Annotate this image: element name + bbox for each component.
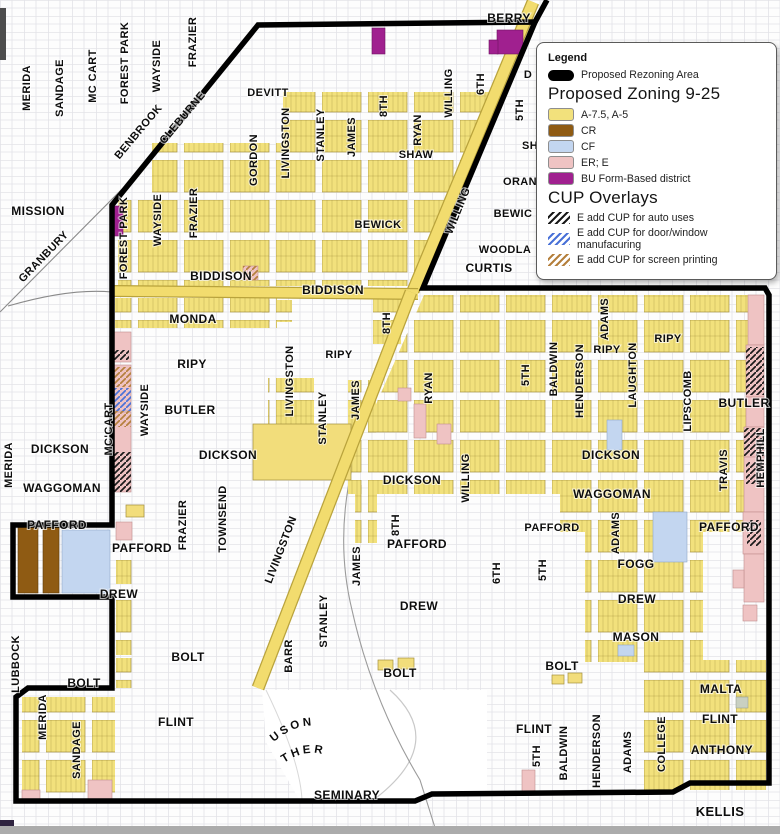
edge-artifact-top-left xyxy=(0,8,6,60)
street-label: MASON xyxy=(613,630,660,644)
street-label: 5TH xyxy=(531,745,543,767)
street-label: BOLT xyxy=(545,659,579,673)
street-label: COLLEGE xyxy=(656,716,668,772)
street-label: 5TH xyxy=(537,559,549,581)
street-label: RYAN xyxy=(423,372,435,403)
legend-item-label: E add CUP for auto uses xyxy=(577,212,694,224)
street-label: STANLEY xyxy=(315,108,327,162)
street-label: BUTLER xyxy=(718,396,769,410)
street-label: 8TH xyxy=(378,95,390,117)
legend-item-label: BU Form-Based district xyxy=(581,173,691,185)
street-label: DREW xyxy=(618,592,657,606)
street-label: 5TH xyxy=(514,99,526,121)
street-label: MISSION xyxy=(11,204,64,218)
street-label: RIPY xyxy=(325,349,353,361)
street-label: MERIDA xyxy=(37,694,49,740)
street-label: JAMES xyxy=(350,380,362,420)
street-label: WAYSIDE xyxy=(151,40,163,93)
street-label: DICKSON xyxy=(582,448,640,462)
street-label: JAMES xyxy=(346,117,358,157)
zone-swatch xyxy=(548,124,574,137)
street-label: JAMES xyxy=(351,546,363,586)
street-label: MC CART xyxy=(87,49,99,103)
street-label: MONDA xyxy=(169,312,216,326)
street-label: KELLIS xyxy=(696,804,745,819)
hatch-swatch xyxy=(548,233,570,245)
legend-item-label: E add CUP for door/window manufacuring xyxy=(577,227,766,251)
street-label: PAFFORD xyxy=(27,518,87,532)
legend-item-label: CF xyxy=(581,141,595,153)
legend-item: E add CUP for door/window manufacuring xyxy=(548,227,766,251)
street-label: HENDERSON xyxy=(574,344,586,418)
hatch-swatch xyxy=(548,254,570,266)
zone-swatch xyxy=(548,156,574,169)
street-label: BUTLER xyxy=(164,403,215,417)
street-label: FRAZIER xyxy=(188,188,200,238)
street-label: WAYSIDE xyxy=(139,384,151,437)
street-label: BOLT xyxy=(383,666,417,680)
street-label: PAFFORD xyxy=(112,541,172,555)
street-label: BIDDISON xyxy=(190,269,252,283)
street-label: WILLING xyxy=(460,453,472,502)
legend: Legend Proposed Rezoning Area Proposed Z… xyxy=(536,42,777,280)
street-label: FRAZIER xyxy=(187,17,199,67)
street-label: DICKSON xyxy=(199,448,257,462)
legend-title: Legend xyxy=(548,52,766,64)
street-label: SANDAGE xyxy=(54,59,66,117)
zone-swatch xyxy=(548,172,574,185)
legend-zoning-heading: Proposed Zoning 9-25 xyxy=(548,84,766,104)
street-label: 6TH xyxy=(475,73,487,95)
street-label: HENDERSON xyxy=(591,714,603,788)
street-label: TRAVIS xyxy=(718,449,730,491)
street-label: FOGG xyxy=(618,557,655,571)
street-label: D xyxy=(524,69,532,81)
street-label: MALTA xyxy=(700,682,742,696)
street-label: WAYSIDE xyxy=(152,194,164,247)
street-label: BIDDISON xyxy=(302,283,364,297)
street-label: STANLEY xyxy=(318,594,330,648)
street-label: MC'CART xyxy=(103,402,115,455)
legend-item: E add CUP for auto uses xyxy=(548,212,766,224)
street-label: BALDWIN xyxy=(548,342,560,397)
street-label: LIVINGSTON xyxy=(280,107,292,178)
legend-item: A-7.5, A-5 xyxy=(548,108,766,121)
street-label: BERRY xyxy=(487,11,531,25)
street-label: DICKSON xyxy=(31,442,89,456)
street-label: WOODLA xyxy=(479,244,532,256)
street-label: PAFFORD xyxy=(699,520,759,534)
street-label: ADAMS xyxy=(610,512,622,554)
street-label: CURTIS xyxy=(465,261,512,275)
street-label: LIPSCOMB xyxy=(682,370,694,431)
legend-item-rezoning: Proposed Rezoning Area xyxy=(548,69,766,81)
street-label: ADAMS xyxy=(622,731,634,773)
street-label: FOREST PARK xyxy=(119,22,131,104)
street-label: BEWIC xyxy=(494,208,533,220)
street-label: FLINT xyxy=(158,715,194,729)
street-label: 8TH xyxy=(390,514,402,536)
street-label: SHAW xyxy=(399,149,434,161)
street-label: LUBBOCK xyxy=(10,635,22,693)
rezoning-swatch xyxy=(548,70,574,81)
street-label: MERIDA xyxy=(3,442,15,488)
street-label: SEMINARY xyxy=(314,788,380,802)
street-label: FLINT xyxy=(516,722,552,736)
street-label: BOLT xyxy=(171,650,205,664)
street-label: WILLING xyxy=(443,68,455,117)
street-label: SANDAGE xyxy=(71,721,83,779)
street-label: HEMPHILL xyxy=(755,428,767,487)
legend-item-label: CR xyxy=(581,125,596,137)
bottom-gray-bar xyxy=(0,826,780,834)
zoning-map-page: MERIDASANDAGEMC CARTFOREST PARKWAYSIDEFR… xyxy=(0,0,780,834)
street-label: FRAZIER xyxy=(177,500,189,550)
legend-item: ER; E xyxy=(548,156,766,169)
legend-item-label: ER; E xyxy=(581,157,609,169)
legend-item: E add CUP for screen printing xyxy=(548,254,766,266)
street-label: RIPY xyxy=(593,344,621,356)
street-label: 8TH xyxy=(381,312,393,334)
street-label: LIVINGSTON xyxy=(284,345,296,416)
street-label: PAFFORD xyxy=(387,537,447,551)
street-label: DREW xyxy=(400,599,439,613)
street-label: PAFFORD xyxy=(524,522,579,534)
street-label: DREW xyxy=(100,587,139,601)
street-label: WAGGOMAN xyxy=(573,487,651,501)
street-label: ANTHONY xyxy=(691,743,753,757)
street-label: 5TH xyxy=(520,364,532,386)
street-label: FOREST PARK xyxy=(118,197,130,279)
street-label: BEWICK xyxy=(354,219,401,231)
zone-swatch xyxy=(548,140,574,153)
street-label: ADAMS xyxy=(599,298,611,340)
open-land-area xyxy=(262,690,487,801)
legend-overlays-heading: CUP Overlays xyxy=(548,188,766,208)
street-label: BARR xyxy=(283,639,295,672)
street-label: MERIDA xyxy=(21,65,33,111)
legend-item: CR xyxy=(548,124,766,137)
street-label: BOLT xyxy=(67,676,101,690)
street-label: RIPY xyxy=(177,357,207,371)
street-label: GORDON xyxy=(248,134,260,186)
legend-item-label: A-7.5, A-5 xyxy=(581,109,628,121)
zone-swatch xyxy=(548,108,574,121)
hatch-swatch xyxy=(548,212,570,224)
street-label: 6TH xyxy=(491,562,503,584)
street-label: RYAN xyxy=(412,114,424,145)
legend-item-label: Proposed Rezoning Area xyxy=(581,69,699,81)
street-label: WAGGOMAN xyxy=(23,481,101,495)
street-label: FLINT xyxy=(702,712,738,726)
gray-parcel xyxy=(736,697,748,708)
legend-item-label: E add CUP for screen printing xyxy=(577,254,718,266)
street-label: RIPY xyxy=(654,333,682,345)
street-label: DEVITT xyxy=(247,87,289,99)
street-label: STANLEY xyxy=(317,391,329,445)
street-label: TOWNSEND xyxy=(217,485,229,552)
street-label: ORAN xyxy=(503,176,537,188)
street-label: DICKSON xyxy=(383,473,441,487)
legend-item: CF xyxy=(548,140,766,153)
street-label: BALDWIN xyxy=(558,726,570,781)
legend-item: BU Form-Based district xyxy=(548,172,766,185)
street-label: LAUGHTON xyxy=(627,342,639,407)
